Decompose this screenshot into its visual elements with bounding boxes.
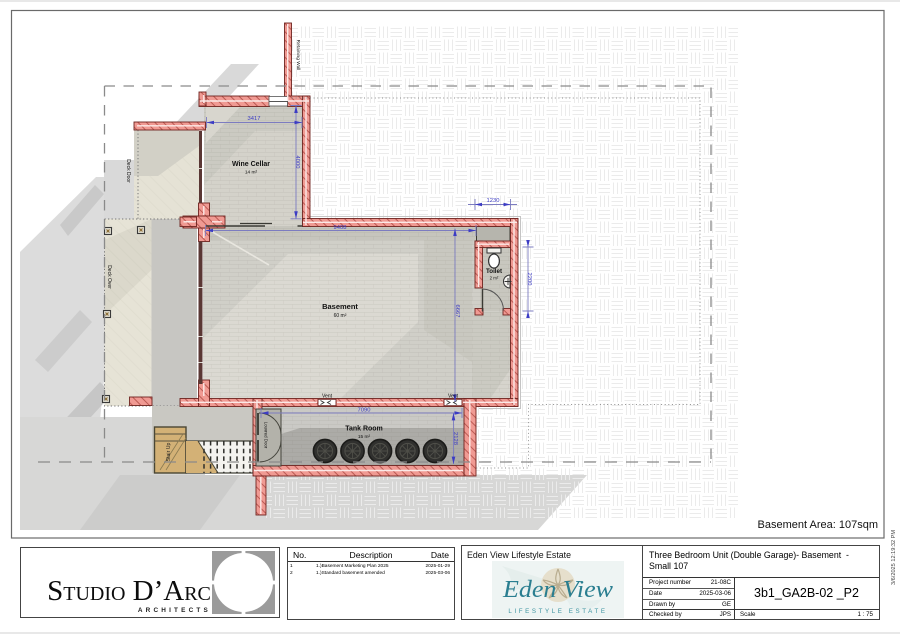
svg-text:3417: 3417 bbox=[248, 116, 261, 122]
svg-text:15 m²: 15 m² bbox=[358, 434, 371, 440]
svg-text:2128: 2128 bbox=[452, 432, 458, 445]
svg-text:Tank Room: Tank Room bbox=[345, 426, 383, 433]
svg-text:Wine Cellar: Wine Cellar bbox=[232, 161, 270, 168]
svg-text:Toilet: Toilet bbox=[486, 268, 502, 275]
svg-text:Vent: Vent bbox=[448, 394, 459, 400]
svg-text:Eden View: Eden View bbox=[502, 576, 613, 603]
svg-text:1230: 1230 bbox=[487, 198, 500, 204]
svg-text:2 m²: 2 m² bbox=[490, 276, 499, 281]
svg-text:9408: 9408 bbox=[334, 225, 347, 231]
svg-text:Basement: Basement bbox=[322, 302, 358, 311]
svg-text:Vent: Vent bbox=[322, 394, 333, 400]
svg-text:Stair Up: Stair Up bbox=[166, 443, 172, 462]
svg-text:Deck Over: Deck Over bbox=[106, 265, 112, 289]
svg-text:3/6/2025 12:19:32 PM: 3/6/2025 12:19:32 PM bbox=[891, 530, 897, 585]
svg-text:LIFESTYLE ESTATE: LIFESTYLE ESTATE bbox=[508, 608, 607, 615]
svg-text:60 m²: 60 m² bbox=[334, 313, 347, 319]
svg-text:7090: 7090 bbox=[358, 408, 371, 414]
svg-text:Louvred Door: Louvred Door bbox=[264, 422, 269, 449]
svg-text:4000: 4000 bbox=[294, 156, 300, 169]
svg-text:2200: 2200 bbox=[526, 273, 532, 286]
svg-text:6667: 6667 bbox=[454, 305, 460, 318]
svg-text:Basement Area: 107sqm: Basement Area: 107sqm bbox=[758, 519, 878, 531]
svg-text:14 m²: 14 m² bbox=[245, 170, 258, 176]
svg-text:Retaining Wall: Retaining Wall bbox=[295, 40, 301, 71]
svg-text:Deck Door: Deck Door bbox=[125, 159, 131, 183]
